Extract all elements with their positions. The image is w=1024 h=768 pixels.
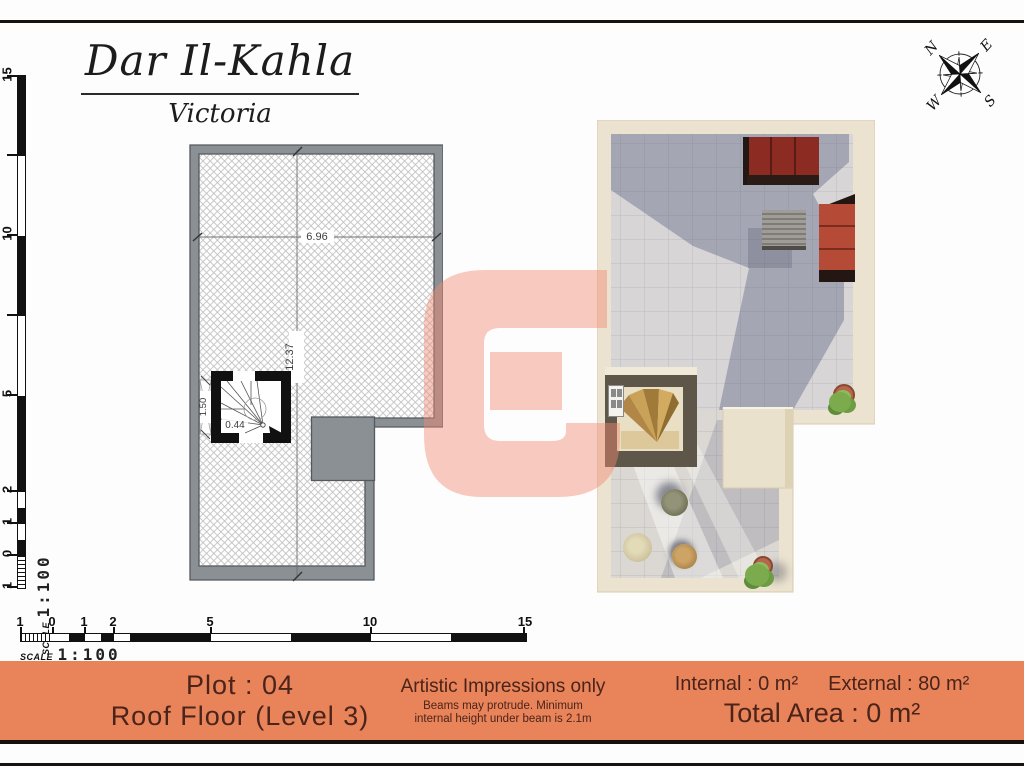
project-location: Victoria [52,99,388,129]
v-ruler-label: 10 [0,223,15,245]
v-tick [7,314,17,316]
round-table-olive [661,489,688,516]
render-wall-block [723,408,793,488]
vertical-scale-bar [17,75,26,589]
drawing-sheet: Dar Il-Kahla Victoria [0,0,1024,768]
footer-bar: Plot : 04 Roof Floor (Level 3) Artistic … [0,661,1024,740]
footer-underline [0,740,1024,744]
stairwell-3d [605,367,697,467]
h-ruler-label: 15 [512,614,538,629]
v-tick [7,154,17,156]
round-table-wood [672,544,697,569]
sofa-top [743,137,819,187]
compass-label-w: W [924,92,947,115]
v-ruler-label: 2 [0,479,15,501]
notice-line2: internal height under beam is 2.1m [368,713,638,726]
total-area: Total Area : 0 m² [650,698,994,729]
render-base [597,120,875,600]
project-title: Dar Il-Kahla [81,36,359,95]
utility-panel [608,385,624,417]
v-ruler-label: 1 [0,511,15,533]
footer-area-block: Internal : 0 m² External : 80 m² Total A… [650,661,994,740]
plan-wall-block [312,417,375,481]
horizontal-scale-hatch [21,634,53,641]
floor-plan-3d-render [597,120,875,600]
compass-rose: N E S W [912,24,1008,124]
external-area: External : 80 m² [828,673,969,696]
vertical-scale-hatch [18,556,25,588]
floor-plan-2d: 6.96 12.37 1.50 0.44 [185,143,443,583]
horizontal-scale-bar [20,633,527,642]
v-ruler-label: 15 [0,64,15,86]
compass-label-e: E [977,37,996,56]
dim-shaft-label: 1.50 [198,398,209,417]
internal-area: Internal : 0 m² [675,673,798,696]
compass-label-s: S [981,93,999,111]
page-bottom-border [0,763,1024,766]
vertical-scale-ruler: 15 10 5 2 1 0 1 SCALE 1:100 [0,55,62,615]
sofa-right [819,194,855,282]
dim-height-label: 12.37 [284,343,296,371]
potted-plant-terrace [743,556,777,590]
v-ruler-label: 0 [0,543,15,565]
footer-notice-block: Artistic Impressions only Beams may prot… [368,661,638,740]
v-ruler-label: 5 [0,383,15,405]
wooden-stairs [617,387,683,451]
notice-title: Artistic Impressions only [368,676,638,698]
page-top-border [0,20,1024,23]
dim-width-label: 6.96 [306,231,327,243]
round-table-cream [623,533,652,562]
slatted-bench [762,210,806,250]
scale-value: 1:100 [34,554,53,617]
dim-step-label: 0.44 [225,420,245,431]
potted-plant-top [827,384,857,418]
title-block: Dar Il-Kahla Victoria [52,36,388,129]
staircase [211,371,291,443]
v-ruler-label: 1 [0,575,15,597]
compass-label-n: N [921,38,942,59]
notice-line1: Beams may protrude. Minimum [368,700,638,713]
